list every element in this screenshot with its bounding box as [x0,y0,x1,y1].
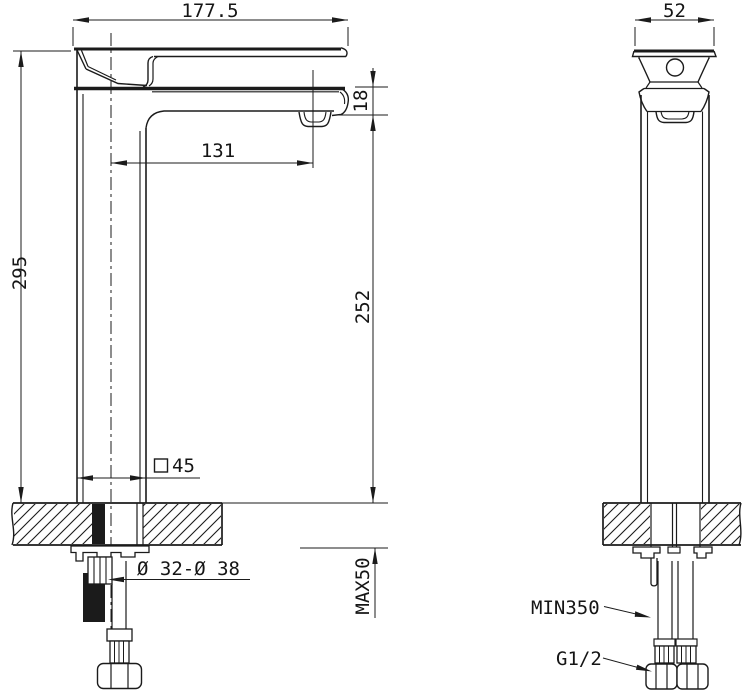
faucet-technical-drawing: 177.5 52 295 131 18 [0,0,747,690]
supply-hose [112,561,126,629]
head-body [77,50,147,86]
dim-mounting-hole: Ø 32-Ø 38 [108,558,250,582]
square-symbol [155,459,168,472]
hex-nut-right [677,664,708,689]
dim-label: G1/2 [556,648,602,670]
head-cap [633,51,717,59]
dim-outlet-height: 252 [222,290,388,503]
dim-body-square: 45 [77,455,200,481]
dim-label: Ø 32-Ø 38 [137,558,240,580]
technical-drawing-page: 177.5 52 295 131 18 [0,0,747,690]
dim-label: MAX50 [352,557,374,614]
hose-collar [107,629,132,641]
dimensions: 177.5 52 295 131 18 [9,0,714,672]
washer-right [694,547,712,558]
handle-lever [74,48,347,87]
dim-head-width: 52 [635,0,714,46]
dim-label: 131 [201,140,235,162]
dim-label: 52 [663,0,686,22]
spout-arm [74,89,348,129]
dim-label: 18 [350,90,372,113]
stud-bracket [651,558,657,586]
under-counter-front [633,547,712,689]
hose-left [658,561,672,645]
aerator [299,112,331,127]
hose-right [678,561,693,645]
spout-hole [667,59,684,76]
dim-label: MIN350 [531,597,600,619]
dim-overall-height: 295 [9,51,71,503]
break-line [12,503,14,545]
dim-max-counter: MAX50 [300,548,388,618]
washer-left [633,547,660,558]
dim-label: 177.5 [181,0,238,22]
front-view [603,51,741,689]
dim-spout-reach: 177.5 [73,0,348,46]
side-view [12,33,349,689]
mounting-stud [92,504,105,544]
hex-nut-left [646,664,677,689]
dim-label: 45 [172,455,195,477]
head-neck [639,58,709,89]
label-thread-size: G1/2 [556,648,652,672]
dim-label: 295 [9,256,31,290]
counter-section-side [12,503,222,546]
dim-label: 252 [352,290,374,324]
label-min-hose: MIN350 [531,597,651,619]
column-front [641,95,709,503]
counter-section-front [603,503,741,547]
dim-spout-tip: 18 [337,68,388,503]
hex-nut [98,664,142,689]
spout-collar-front [639,89,709,123]
